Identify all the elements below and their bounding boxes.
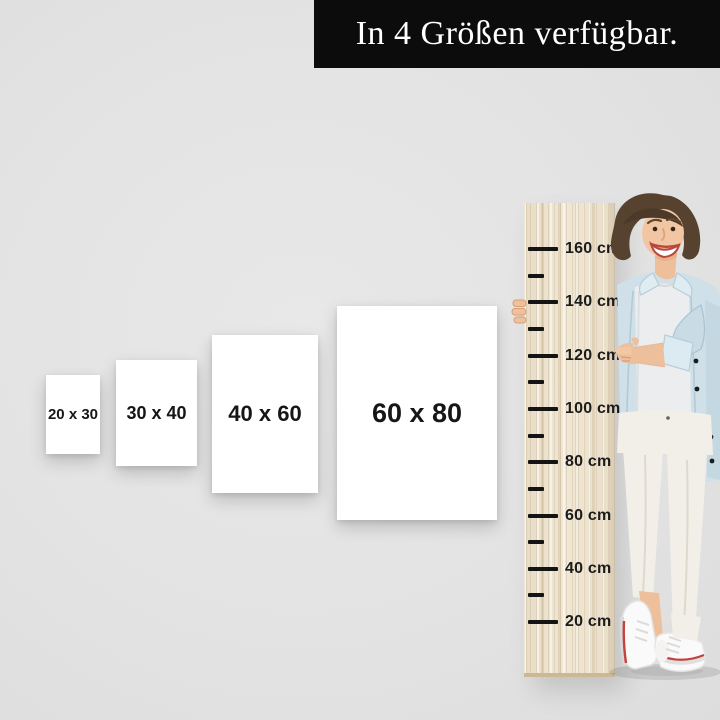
woman-photo (505, 185, 720, 685)
size-card-20x30: 20 x 30 (46, 375, 100, 454)
size-label: 60 x 80 (372, 398, 462, 429)
pant-cuff (671, 613, 701, 641)
availability-banner: In 4 Größen verfügbar. (314, 0, 720, 68)
size-comparison-infographic: In 4 Größen verfügbar. 20 x 30 30 x 40 4… (0, 0, 720, 720)
holding-hand-fingers (512, 300, 526, 323)
woman-head (611, 193, 700, 279)
pants-button (666, 416, 670, 420)
size-card-60x80: 60 x 80 (337, 306, 497, 520)
banner-text: In 4 Größen verfügbar. (356, 15, 679, 53)
woman-sneaker-back (655, 633, 705, 671)
size-label: 40 x 60 (228, 401, 301, 427)
size-label: 20 x 30 (48, 406, 98, 423)
size-card-30x40: 30 x 40 (116, 360, 197, 466)
size-label: 30 x 40 (126, 403, 186, 424)
size-card-40x60: 40 x 60 (212, 335, 318, 493)
woman-pants (617, 410, 713, 633)
